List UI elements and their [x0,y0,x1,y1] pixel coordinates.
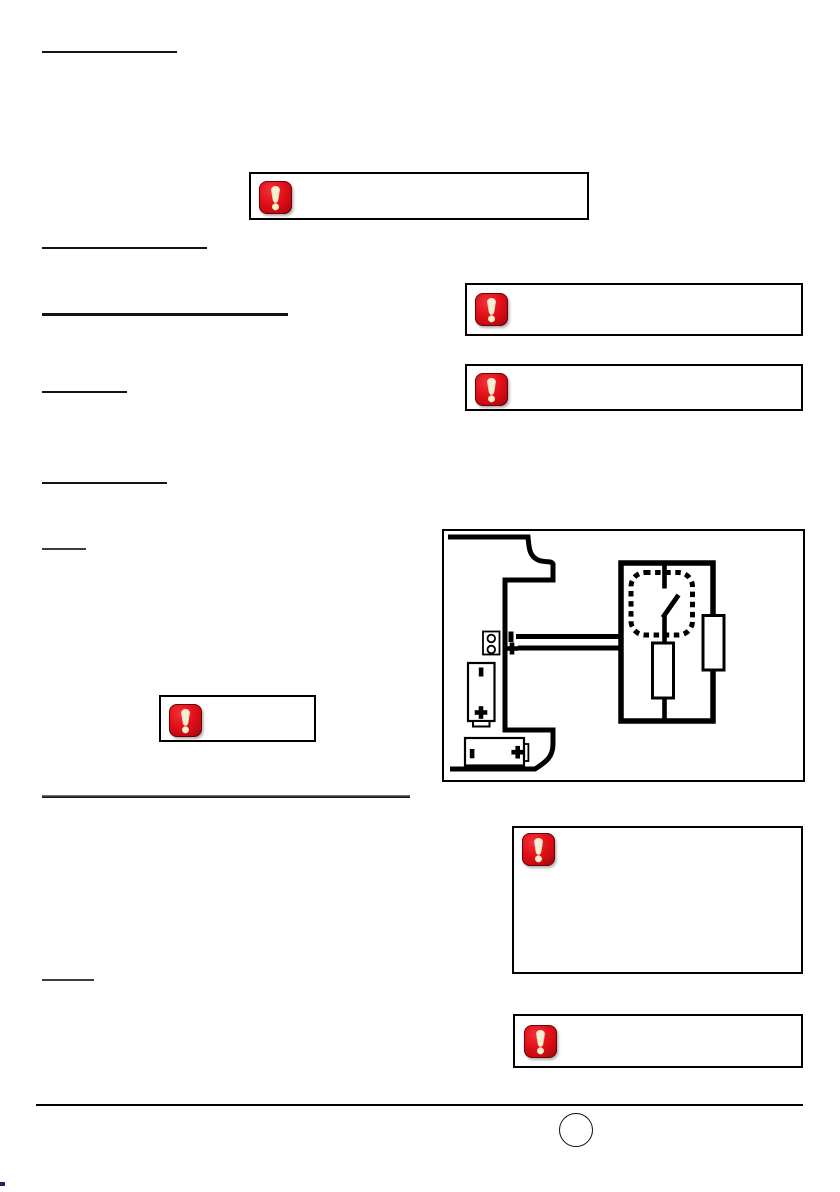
terminal-screw-bottom [488,646,496,654]
warning-exclamation-icon [475,373,508,406]
terminal-screw-top [488,635,496,643]
warning-callout-4 [159,695,316,742]
plus-polarity-mark [510,643,515,655]
warning-exclamation-icon [169,704,202,737]
scan-artifact [0,1182,5,1186]
heading-underline-5 [42,482,167,484]
heading-underline-1 [42,51,177,53]
battery-horizontal [465,738,528,766]
warning-callout-3 [465,364,803,411]
minus-polarity-mark [479,668,484,677]
chassis-outline [448,537,553,769]
heading-underline-4 [42,391,127,393]
heading-underline-8 [42,979,94,981]
warning-exclamation-icon [259,181,292,214]
minus-polarity-mark [470,749,475,758]
warning-callout-5 [512,826,803,974]
heading-underline-6 [42,548,86,550]
heading-underline-7 [42,795,410,798]
resistor-middle [653,643,674,698]
plus-polarity-mark [515,746,520,759]
warning-exclamation-icon [524,1025,557,1058]
warning-callout-2 [465,283,803,336]
warning-exclamation-icon [522,833,555,866]
warning-callout-1 [249,172,589,220]
heading-underline-3 [42,313,288,316]
battery-terminal-tab [473,721,490,727]
battery-vertical [468,663,495,727]
plus-polarity-mark [479,706,484,719]
relay-dotted-outline [631,573,693,636]
circuit-diagram-figure [442,529,805,782]
heading-underline-2 [42,247,207,249]
minus-polarity-mark [509,632,514,643]
circuit-diagram [442,529,805,782]
warning-callout-6 [513,1014,803,1068]
switch-blade [663,595,679,618]
warning-exclamation-icon [475,293,508,326]
manual-page [0,0,840,1192]
page-number-circle [559,1113,593,1147]
footer-rule [36,1104,803,1106]
resistor-right [703,616,724,671]
